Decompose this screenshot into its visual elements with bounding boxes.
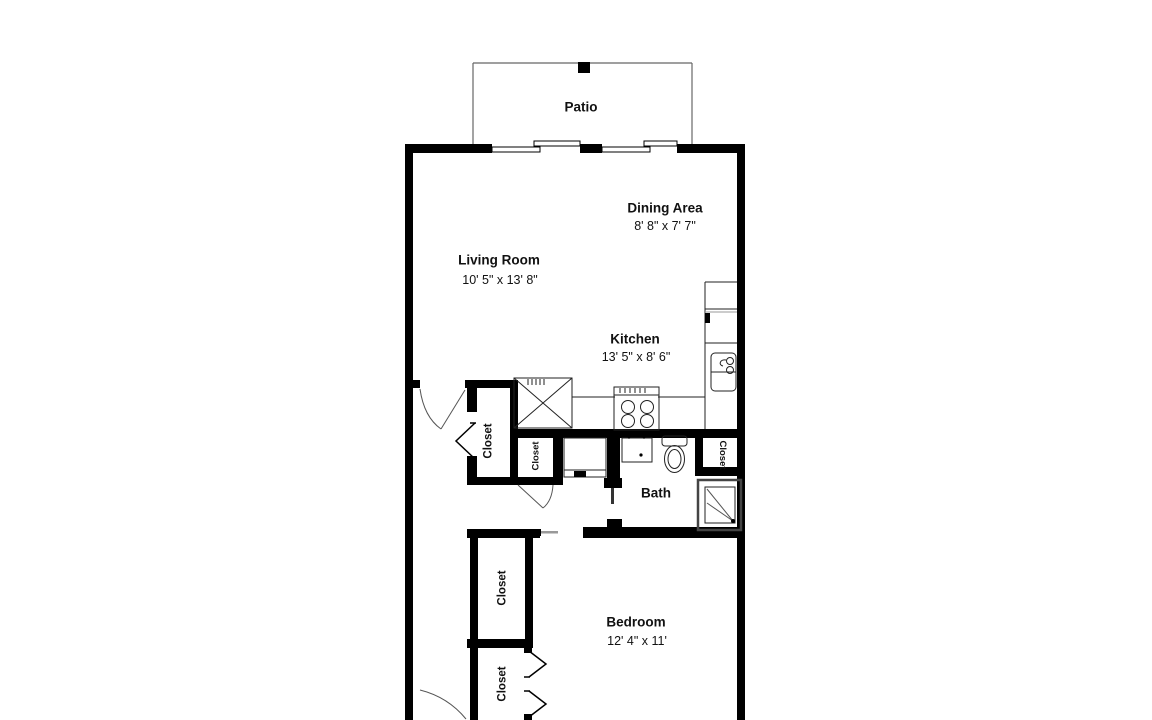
washer-dryer-icon (514, 378, 572, 428)
bedroom-dims: 12' 4" x 11' (607, 635, 667, 648)
kitchen-dims: 13' 5" x 8' 6" (602, 351, 671, 364)
bath-label: Bath (641, 486, 671, 500)
living-room-label: Living Room (458, 253, 540, 267)
entry-closet-label: Closet (483, 423, 495, 458)
floorplan-canvas: Patio Dining Area 8' 8" x 7' 7" Living R… (0, 0, 1152, 720)
bath-closet-label: Closet (717, 440, 727, 469)
bath-door-leaf (611, 488, 614, 504)
bedroom-closet-2-label: Closet (497, 666, 509, 701)
shower-icon (698, 480, 741, 530)
entry-closet-door-icon (420, 389, 465, 429)
closet-shelf-line (541, 531, 558, 534)
hall-closet-door-icon (518, 485, 553, 508)
patio-post-icon (578, 62, 590, 73)
fridge-handle-icon (705, 313, 710, 323)
bedroom-closet-1-label: Closet (497, 570, 509, 605)
patio-label: Patio (564, 100, 597, 114)
stove-icon (614, 387, 659, 430)
kitchen-sink-icon (711, 353, 736, 391)
kitchen-label: Kitchen (610, 332, 660, 346)
toilet-icon (662, 436, 687, 473)
water-heater-tick (574, 471, 586, 477)
front-door-icon (420, 690, 466, 719)
dining-area-label: Dining Area (627, 201, 702, 215)
living-room-dims: 10' 5" x 13' 8" (462, 274, 538, 287)
bedroom-label: Bedroom (606, 615, 665, 629)
dining-area-dims: 8' 8" x 7' 7" (634, 220, 696, 233)
hall-closet-label: Closet (531, 441, 541, 470)
